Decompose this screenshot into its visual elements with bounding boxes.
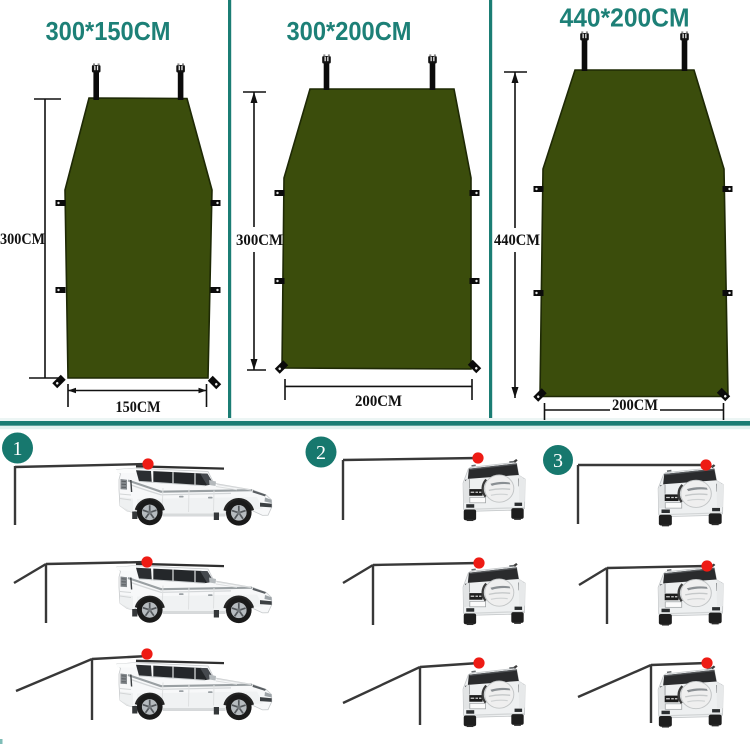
svg-text:1: 1 xyxy=(13,438,23,460)
svg-text:300CM: 300CM xyxy=(236,232,283,249)
svg-text:2: 2 xyxy=(316,442,326,464)
svg-text:300*200CM: 300*200CM xyxy=(287,16,412,46)
svg-text:300*150CM: 300*150CM xyxy=(46,16,171,46)
svg-text:3: 3 xyxy=(553,450,563,472)
svg-text:440*200CM: 440*200CM xyxy=(560,3,690,33)
svg-text:300CM: 300CM xyxy=(0,231,45,248)
svg-text:440CM: 440CM xyxy=(494,232,540,249)
svg-text:200CM: 200CM xyxy=(612,397,658,414)
svg-text:150CM: 150CM xyxy=(116,399,161,416)
svg-text:200CM: 200CM xyxy=(355,393,402,410)
